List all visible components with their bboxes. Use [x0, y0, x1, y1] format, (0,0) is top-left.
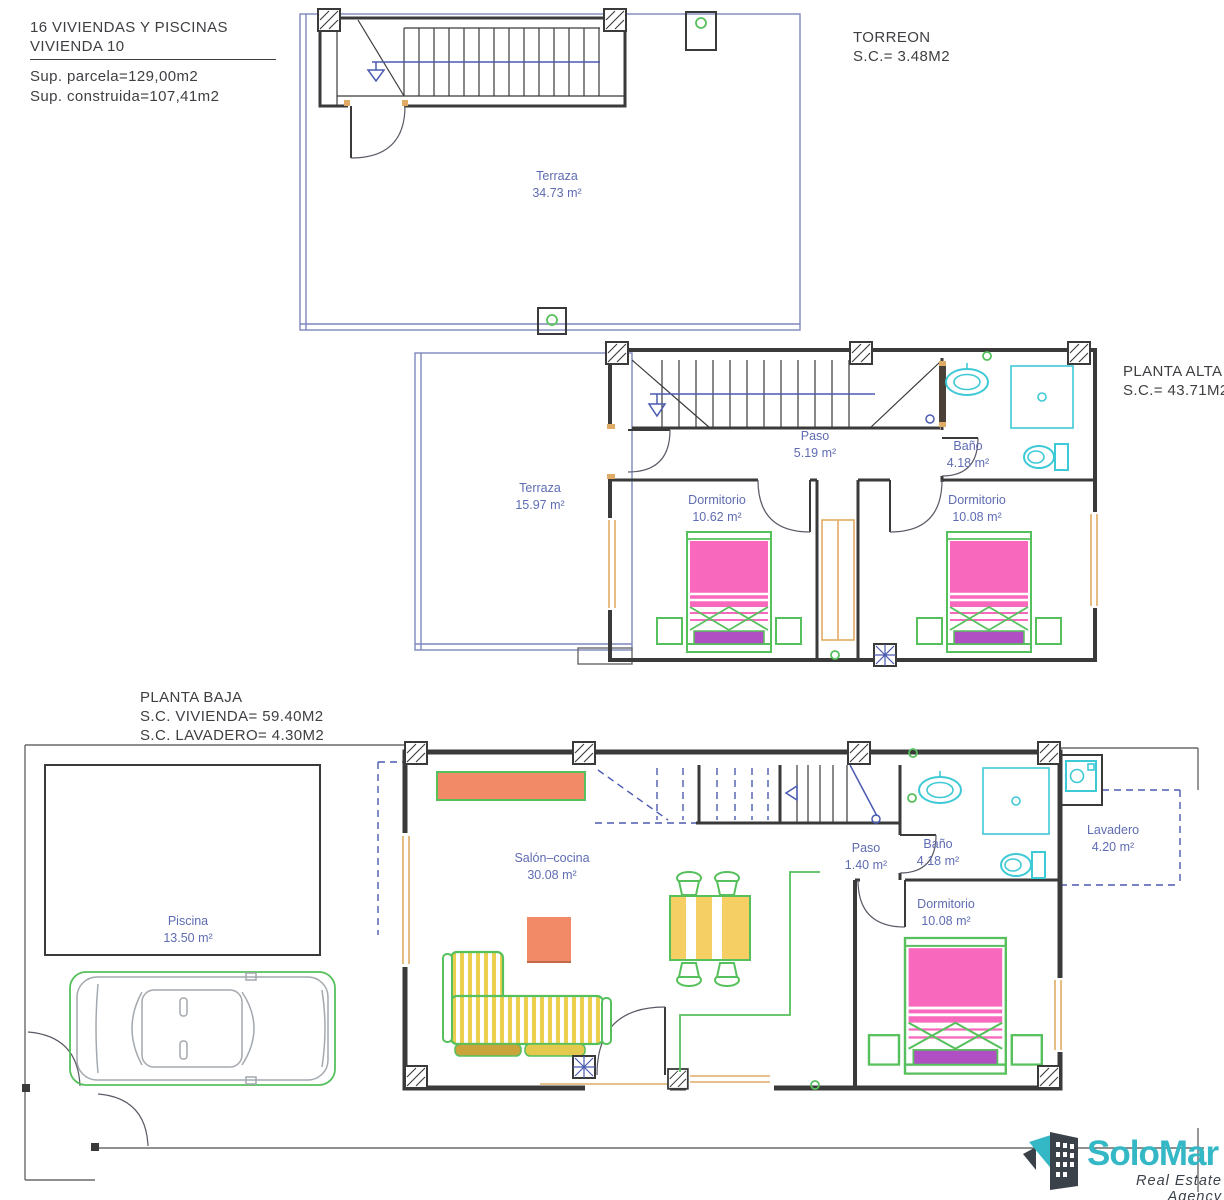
stair-direction-arrow-icon — [786, 786, 797, 800]
vent-icon — [831, 651, 839, 659]
bed-icon — [869, 938, 1042, 1074]
washing-machine-icon — [1066, 761, 1096, 791]
room-label-bano-baja: Baño 4.18 m² — [917, 836, 959, 870]
floorplan-sheet: 16 VIVIENDAS Y PISCINAS VIVIENDA 10 Sup.… — [0, 0, 1224, 1200]
sink-icon — [919, 777, 961, 803]
sink-icon — [946, 369, 988, 395]
column-icon — [405, 1066, 427, 1088]
logo-brand-text: SoloMar — [1087, 1136, 1222, 1171]
column-icon — [850, 342, 872, 364]
solomar-building-icon — [1022, 1130, 1084, 1196]
room-label-dormitorio-alta-der: Dormitorio 10.08 m² — [948, 492, 1006, 526]
door-arc-icon — [890, 480, 942, 532]
stairs — [595, 765, 900, 823]
logo-tagline-text: Real Estate Agency — [1087, 1173, 1222, 1200]
sofa-icon — [443, 952, 611, 1056]
terrace-door — [606, 424, 670, 479]
room-label-paso-baja: Paso 1.40 m² — [845, 840, 887, 874]
car-icon — [70, 972, 335, 1085]
kitchen-counter-icon — [437, 772, 585, 800]
column-icon — [573, 1056, 595, 1078]
column-icon — [848, 742, 870, 764]
room-label-piscina: Piscina 13.50 m² — [163, 913, 212, 947]
shower-icon — [983, 768, 1049, 834]
column-icon — [1038, 1066, 1060, 1088]
torreon-door — [344, 98, 408, 158]
door-arc-icon — [858, 880, 905, 927]
column-icon — [606, 342, 628, 364]
torreon-stairs — [320, 18, 625, 106]
planta-alta-label: PLANTA ALTA S.C.= 43.71M2 — [1123, 362, 1224, 400]
title-block: 16 VIVIENDAS Y PISCINAS VIVIENDA 10 Sup.… — [30, 18, 276, 106]
column-icon — [405, 742, 427, 764]
column-icon — [1038, 742, 1060, 764]
column-icon — [874, 644, 896, 666]
column-icon — [318, 9, 340, 31]
lavadero — [1060, 755, 1102, 805]
column-icon — [604, 9, 626, 31]
unit-title: VIVIENDA 10 — [30, 37, 276, 56]
column-icon — [1068, 342, 1090, 364]
solomar-logo: SoloMar Real Estate Agency — [1022, 1130, 1222, 1198]
gate-arc-icon — [98, 1094, 148, 1146]
plot-boundary — [22, 745, 1204, 1192]
bed-icon — [657, 532, 801, 652]
torreon-label: TORREON S.C.= 3.48M2 — [853, 28, 950, 66]
room-label-dormitorio-alta-izq: Dormitorio 10.62 m² — [688, 492, 746, 526]
room-label-terraza-alta: Terraza 15.97 m² — [515, 480, 564, 514]
dining-set-icon — [670, 872, 750, 986]
room-label-lavadero: Lavadero 4.20 m² — [1087, 822, 1139, 856]
column-icon — [668, 1069, 688, 1089]
roof-drain-box — [686, 12, 716, 50]
door-arc-icon — [351, 106, 405, 158]
vent-icon — [983, 352, 991, 360]
built-area-text: Sup. construida=107,41m2 — [30, 87, 276, 106]
shower-icon — [1011, 366, 1073, 428]
plot-area-text: Sup. parcela=129,00m2 — [30, 67, 276, 86]
project-title: 16 VIVIENDAS Y PISCINAS — [30, 18, 276, 37]
coffee-table-icon — [527, 917, 571, 962]
stairs — [632, 360, 940, 428]
toilet-icon — [1001, 852, 1045, 878]
toilet-icon — [1024, 444, 1068, 470]
planta-baja-label: PLANTA BAJA S.C. VIVIENDA= 59.40M2 S.C. … — [140, 688, 324, 746]
room-label-terraza-roof: Terraza 34.73 m² — [532, 168, 581, 202]
vent-icon — [908, 794, 916, 802]
door-arc-icon — [758, 480, 810, 532]
door-arc-icon — [628, 430, 670, 472]
stair-direction-arrow-icon — [368, 70, 384, 81]
room-label-paso-alta: Paso 5.19 m² — [794, 428, 836, 462]
room-label-dormitorio-baja: Dormitorio 10.08 m² — [917, 896, 975, 930]
bed-icon — [917, 532, 1061, 652]
bedroom-doors — [758, 480, 942, 532]
column-icon — [573, 742, 595, 764]
room-label-bano-alta: Baño 4.18 m² — [947, 438, 989, 472]
bedroom-door — [858, 880, 905, 927]
room-label-salon-cocina: Salón–cocina 30.08 m² — [514, 850, 589, 884]
